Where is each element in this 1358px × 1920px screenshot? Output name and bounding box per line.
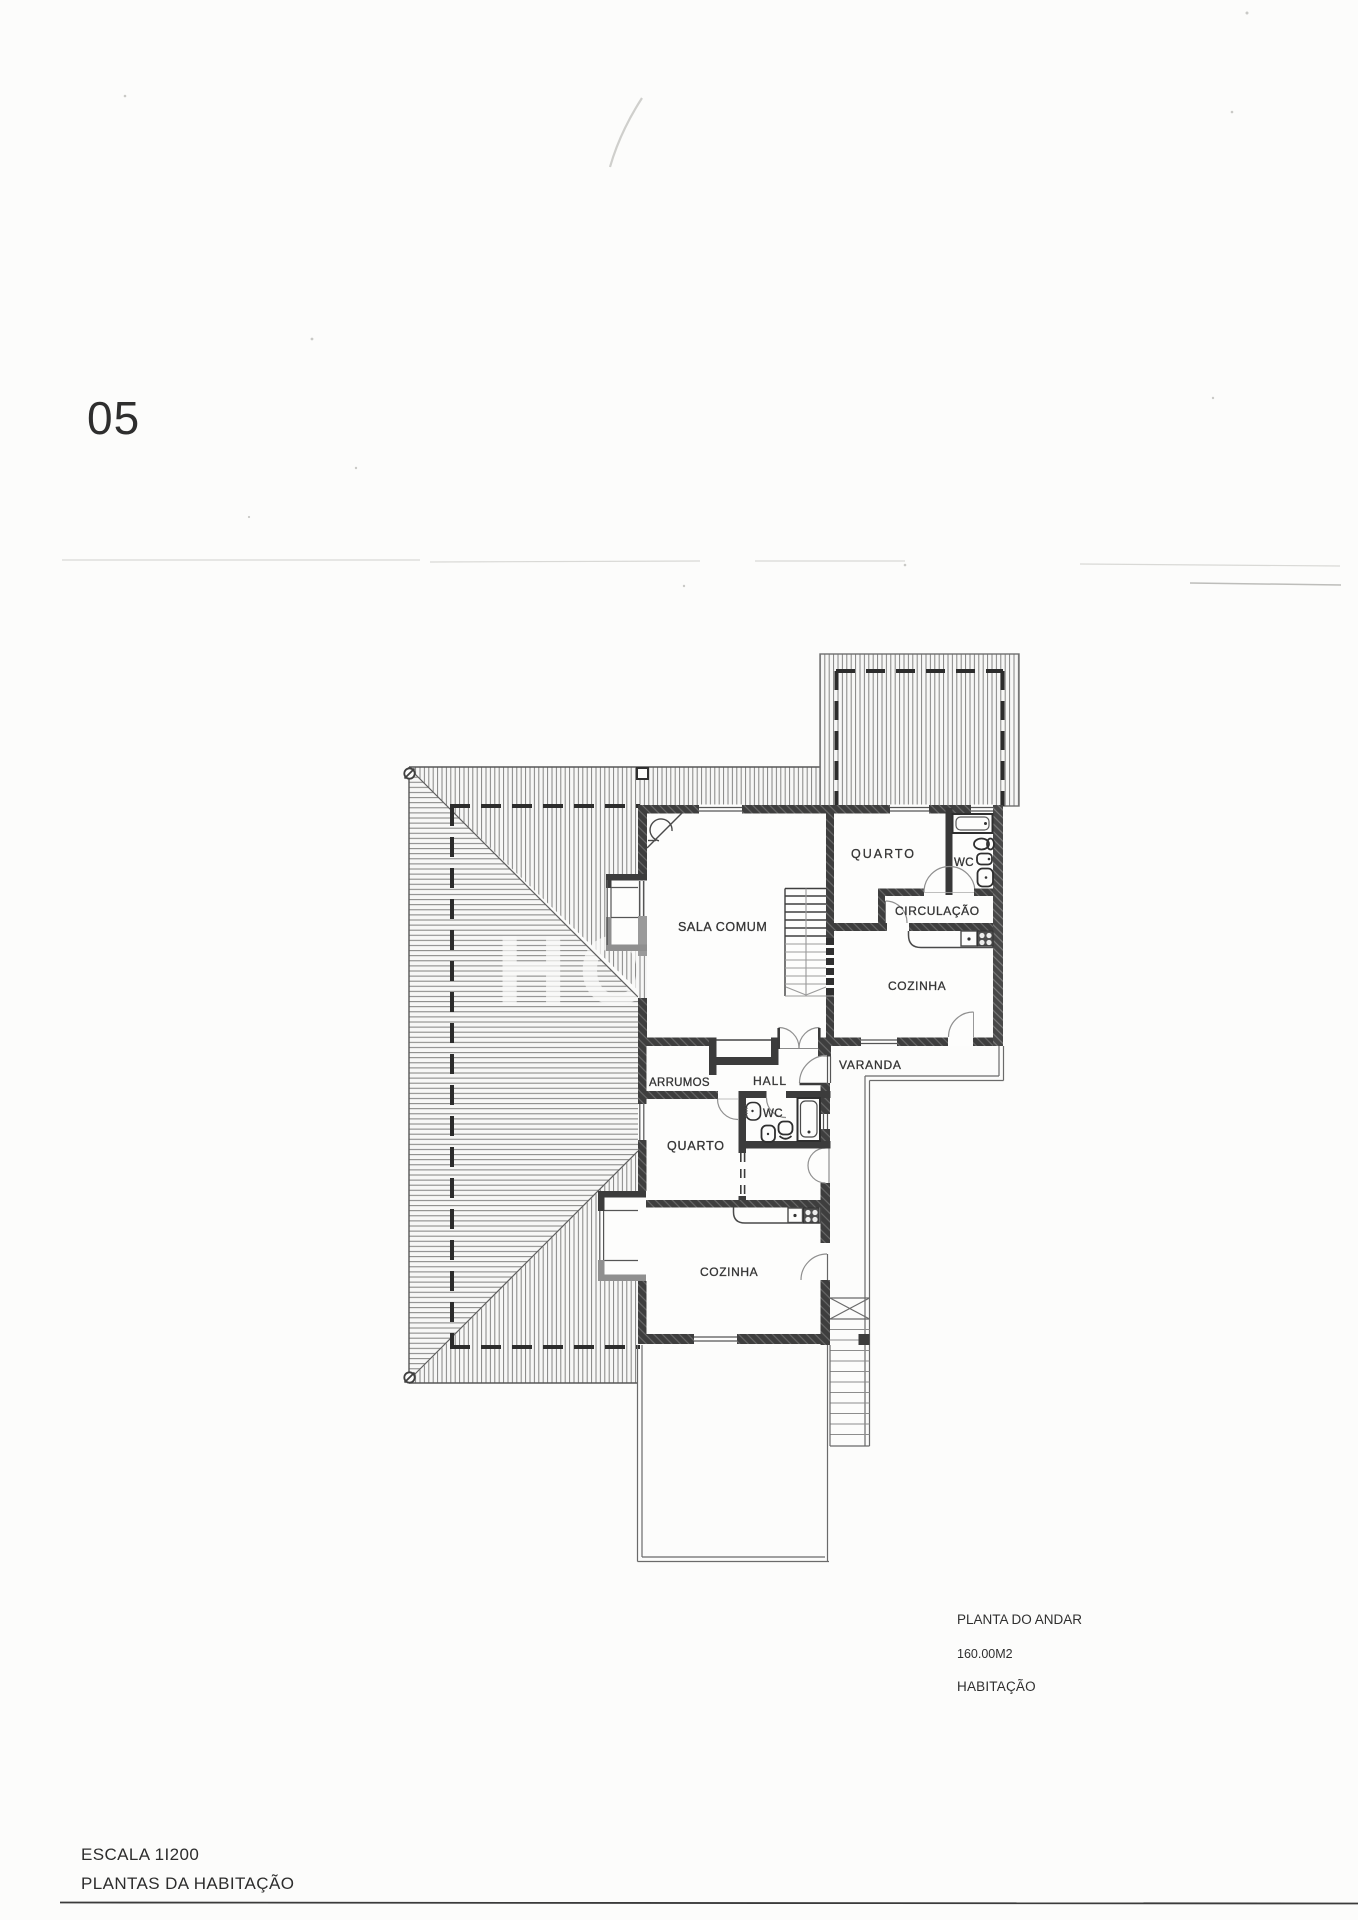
svg-text:CIRCULAÇÃO: CIRCULAÇÃO [895, 904, 980, 918]
svg-text:QUARTO: QUARTO [667, 1139, 725, 1153]
svg-text:VARANDA: VARANDA [839, 1058, 902, 1072]
svg-text:ARRUMOS: ARRUMOS [649, 1077, 710, 1089]
svg-text:PLANTA DO ANDAR: PLANTA DO ANDAR [957, 1612, 1082, 1627]
svg-text:ESCALA 1I200: ESCALA 1I200 [81, 1845, 199, 1864]
svg-text:COZINHA: COZINHA [700, 1265, 758, 1279]
svg-text:WC: WC [763, 1108, 783, 1120]
svg-text:160.00M2: 160.00M2 [957, 1647, 1013, 1661]
svg-text:QUARTO: QUARTO [851, 847, 916, 861]
svg-text:COZINHA: COZINHA [888, 979, 946, 993]
svg-text:HALL: HALL [753, 1074, 787, 1088]
svg-text:HABITAÇÃO: HABITAÇÃO [957, 1679, 1036, 1694]
svg-text:05: 05 [87, 392, 140, 444]
svg-text:SALA COMUM: SALA COMUM [678, 920, 767, 934]
svg-text:WC: WC [954, 857, 974, 869]
svg-text:PLANTAS DA HABITAÇÃO: PLANTAS DA HABITAÇÃO [81, 1874, 294, 1893]
